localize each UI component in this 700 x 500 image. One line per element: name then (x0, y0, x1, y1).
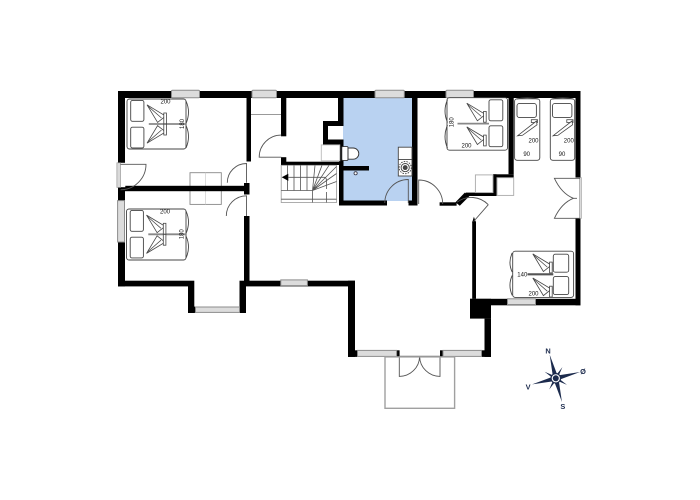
svg-text:200: 200 (528, 138, 539, 144)
svg-text:90: 90 (523, 152, 530, 158)
svg-text:140: 140 (517, 273, 528, 279)
svg-text:200: 200 (564, 138, 575, 144)
svg-text:180: 180 (179, 229, 185, 240)
svg-text:180: 180 (449, 117, 455, 128)
svg-text:200: 200 (160, 99, 171, 105)
svg-text:180: 180 (180, 118, 186, 129)
svg-text:V: V (526, 383, 531, 392)
svg-text:N: N (545, 347, 550, 356)
svg-text:200: 200 (160, 210, 171, 216)
svg-text:Ø: Ø (580, 367, 586, 376)
svg-text:90: 90 (559, 152, 566, 158)
svg-text:200: 200 (461, 143, 472, 149)
svg-text:S: S (560, 402, 565, 411)
svg-text:200: 200 (529, 292, 540, 298)
